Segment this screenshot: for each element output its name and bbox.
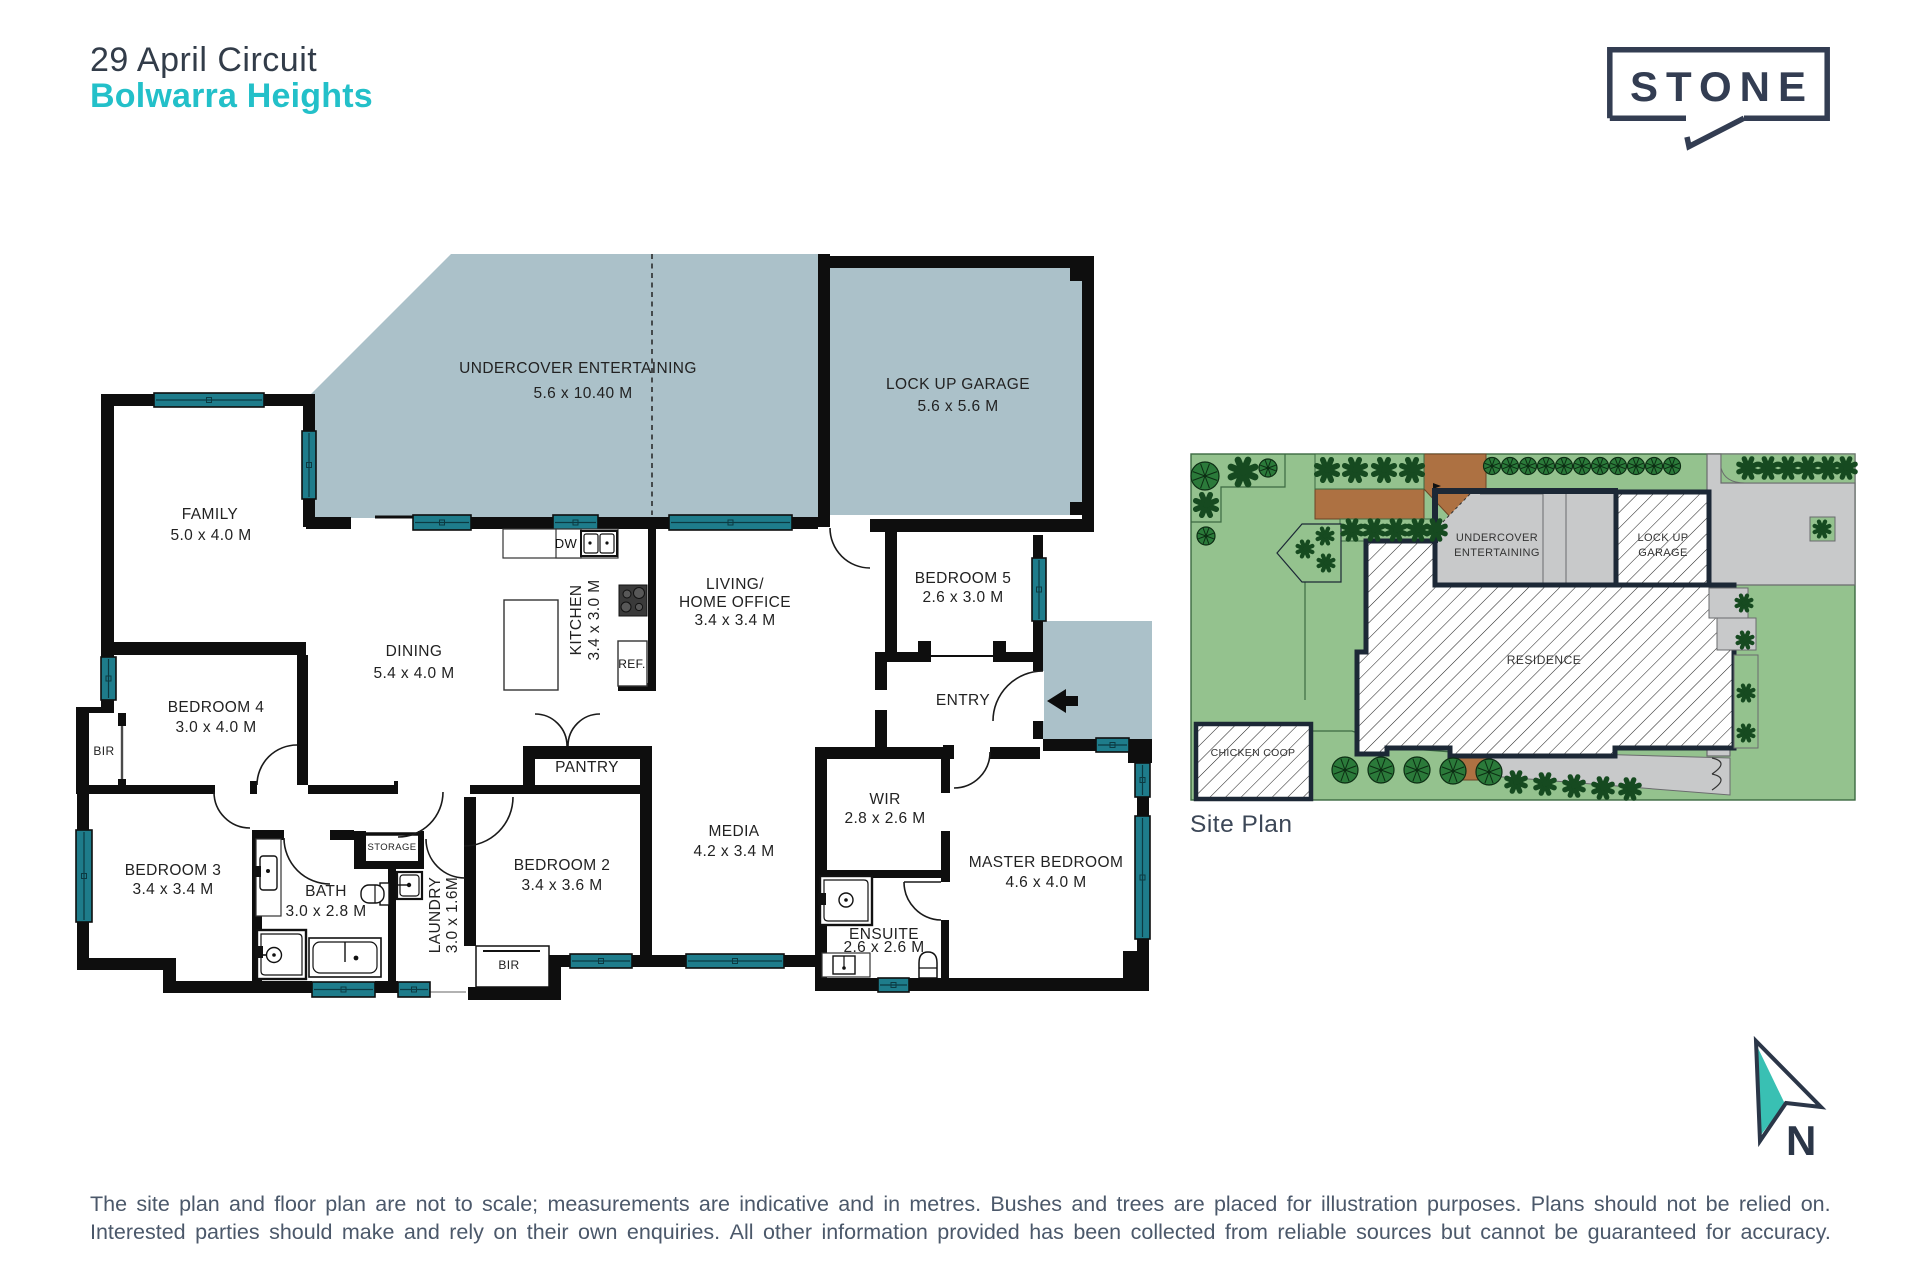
svg-text:UNDERCOVER: UNDERCOVER bbox=[1456, 532, 1538, 544]
svg-text:DW: DW bbox=[555, 536, 578, 551]
svg-text:5.4 x 4.0 M: 5.4 x 4.0 M bbox=[373, 665, 454, 682]
svg-text:3.0 x 2.8 M: 3.0 x 2.8 M bbox=[285, 903, 366, 920]
svg-text:Site Plan: Site Plan bbox=[1190, 811, 1293, 838]
svg-text:2.6 x 3.0 M: 2.6 x 3.0 M bbox=[922, 589, 1003, 606]
svg-text:5.6 x 5.6 M: 5.6 x 5.6 M bbox=[917, 398, 998, 415]
svg-text:3.0 x 1.6M: 3.0 x 1.6M bbox=[444, 877, 461, 953]
svg-text:KITCHEN: KITCHEN bbox=[568, 585, 585, 656]
svg-text:N: N bbox=[1786, 1117, 1816, 1164]
svg-text:REF.: REF. bbox=[618, 657, 646, 671]
svg-text:4.6 x 4.0 M: 4.6 x 4.0 M bbox=[1005, 874, 1086, 891]
svg-text:2.8 x 2.6 M: 2.8 x 2.6 M bbox=[844, 810, 925, 827]
svg-text:MEDIA: MEDIA bbox=[708, 823, 759, 840]
svg-text:5.6 x 10.40 M: 5.6 x 10.40 M bbox=[533, 385, 632, 402]
svg-text:DINING: DINING bbox=[386, 643, 443, 660]
svg-text:CHICKEN COOP: CHICKEN COOP bbox=[1211, 747, 1296, 759]
svg-text:PANTRY: PANTRY bbox=[555, 759, 619, 776]
svg-text:2.6 x 2.6 M: 2.6 x 2.6 M bbox=[843, 939, 924, 956]
svg-text:ENTERTAINING: ENTERTAINING bbox=[1454, 547, 1540, 559]
svg-text:3.4 x 3.0 M: 3.4 x 3.0 M bbox=[586, 579, 603, 660]
svg-text:FAMILY: FAMILY bbox=[182, 506, 238, 523]
svg-text:RESIDENCE: RESIDENCE bbox=[1507, 653, 1582, 667]
svg-text:BIR: BIR bbox=[93, 744, 114, 758]
svg-text:4.2 x 3.4 M: 4.2 x 3.4 M bbox=[693, 843, 774, 860]
svg-text:LOCK UP: LOCK UP bbox=[1637, 532, 1688, 544]
svg-text:UNDERCOVER ENTERTAINING: UNDERCOVER ENTERTAINING bbox=[459, 360, 697, 377]
svg-text:BEDROOM 2: BEDROOM 2 bbox=[514, 857, 611, 874]
svg-text:BEDROOM 5: BEDROOM 5 bbox=[915, 570, 1012, 587]
svg-text:BATH: BATH bbox=[305, 883, 347, 900]
svg-text:3.4 x 3.6 M: 3.4 x 3.6 M bbox=[521, 877, 602, 894]
svg-text:BEDROOM 3: BEDROOM 3 bbox=[125, 862, 222, 879]
svg-text:3.0 x 4.0 M: 3.0 x 4.0 M bbox=[175, 719, 256, 736]
svg-text:GARAGE: GARAGE bbox=[1638, 547, 1687, 559]
svg-text:MASTER BEDROOM: MASTER BEDROOM bbox=[969, 854, 1124, 871]
svg-text:STORAGE: STORAGE bbox=[367, 842, 416, 853]
svg-text:HOME OFFICE: HOME OFFICE bbox=[679, 594, 791, 611]
svg-text:LOCK UP GARAGE: LOCK UP GARAGE bbox=[886, 376, 1030, 393]
svg-text:STONE: STONE bbox=[1630, 63, 1814, 110]
svg-text:ENTRY: ENTRY bbox=[936, 692, 990, 709]
svg-text:5.0 x 4.0 M: 5.0 x 4.0 M bbox=[170, 527, 251, 544]
svg-text:3.4 x 3.4 M: 3.4 x 3.4 M bbox=[694, 612, 775, 629]
svg-text:BIR: BIR bbox=[498, 958, 519, 972]
svg-text:3.4 x 3.4 M: 3.4 x 3.4 M bbox=[132, 881, 213, 898]
svg-text:BEDROOM 4: BEDROOM 4 bbox=[168, 699, 265, 716]
svg-text:WIR: WIR bbox=[869, 791, 900, 808]
svg-text:LAUNDRY: LAUNDRY bbox=[427, 877, 444, 954]
svg-text:LIVING/: LIVING/ bbox=[706, 576, 764, 593]
